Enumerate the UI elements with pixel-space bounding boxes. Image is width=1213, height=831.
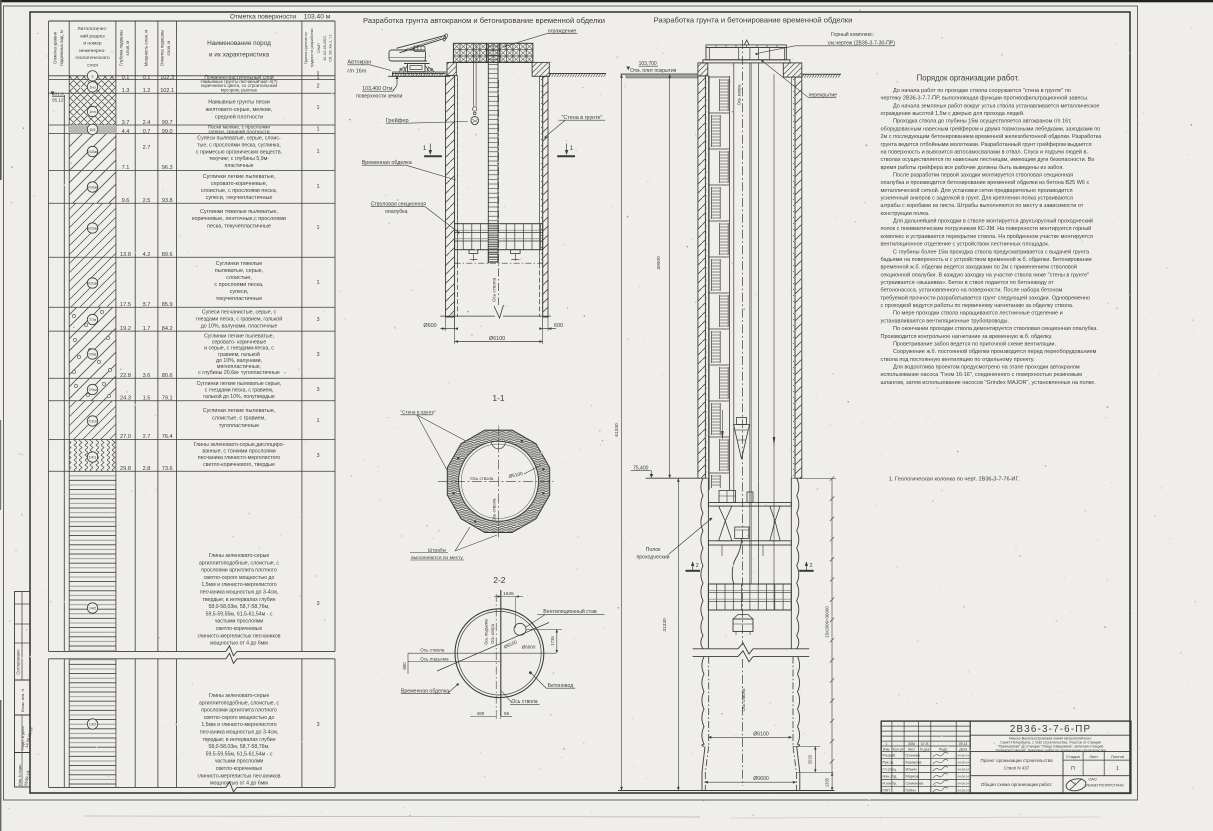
svg-text:устанавливаются вентиляционные: устанавливаются вентиляционные трубопров…: [881, 318, 1010, 324]
svg-text:супеси, текучепластичные: супеси, текучепластичные: [206, 195, 273, 201]
svg-text:светло-коричневого, твердые: светло-коричневого, твердые: [203, 462, 275, 468]
svg-text:1: 1: [1116, 766, 1119, 772]
svg-text:1: 1: [886, 742, 888, 746]
svg-text:Б/5: Б/5: [90, 127, 96, 132]
svg-text:средней плотности: средней плотности: [215, 114, 263, 121]
svg-text:частыми прослоями: частыми прослоями: [215, 619, 264, 625]
svg-text:трудности разработки: трудности разработки: [310, 29, 314, 68]
svg-text:твердые; в интервалах глубин: твердые; в интервалах глубин: [202, 597, 275, 603]
svg-text:металлической сеткой. Для уста: металлической сеткой. Для установки сетк…: [881, 187, 1073, 194]
svg-text:Супеси пылеватые, серые, слоис: Супеси пылеватые, серые, слоис-: [197, 136, 281, 142]
svg-text:Губин: Губин: [906, 788, 916, 792]
svg-text:твердые; в интервалах глубин: твердые; в интервалах глубин: [202, 737, 275, 743]
svg-text:05.12: 05.12: [52, 98, 64, 103]
svg-text:Разраб.: Разраб.: [883, 754, 897, 758]
svg-text:Глубина подошвы: Глубина подошвы: [119, 30, 124, 66]
svg-text:24.3: 24.3: [120, 396, 131, 402]
svg-text:1: 1: [316, 105, 319, 111]
svg-text:0.7: 0.7: [143, 129, 151, 135]
svg-text:г/п 16m: г/п 16m: [347, 69, 366, 75]
svg-text:Ось ствола: Ось ствола: [491, 498, 496, 522]
svg-text:14/2: 14/2: [89, 606, 97, 611]
svg-text:Марков: Марков: [906, 774, 919, 778]
svg-text:опалубка: опалубка: [385, 209, 408, 215]
svg-text:1: 1: [316, 127, 319, 133]
svg-text:35М: 35М: [908, 742, 915, 746]
svg-text:с гнездами песка, с гравием,: с гнездами песка, с гравием,: [205, 388, 274, 394]
svg-text:5/10ав: 5/10ав: [87, 185, 99, 190]
svg-text:песчаника глинисто-мергелистог: песчаника глинисто-мергелистого: [198, 455, 281, 461]
svg-text:геологического: геологического: [75, 56, 109, 61]
svg-text:1: 1: [423, 145, 427, 152]
svg-text:30000: 30000: [656, 256, 662, 270]
svg-text:101,9: 101,9: [52, 92, 64, 97]
svg-text:с глубины 20,6м- тугопластичны: с глубины 20,6м- тугопластичные: [198, 370, 280, 376]
svg-text:27.0: 27.0: [120, 434, 131, 440]
svg-text:аргиллитоподобные, слоистые, с: аргиллитоподобные, слоистые, с: [199, 700, 279, 706]
svg-text:Лист: Лист: [1089, 754, 1098, 759]
svg-text:Инв. N подл.: Инв. N подл.: [18, 764, 22, 786]
svg-text:29.8: 29.8: [120, 466, 131, 472]
svg-text:58,0-58,03м, 58,7-58,76м,: 58,0-58,03м, 58,7-58,76м,: [208, 604, 269, 610]
svg-text:04.08.14: 04.08.14: [958, 788, 970, 792]
svg-text:на поверхность и вывозится авт: на поверхность и вывозится автосамосвала…: [881, 148, 1087, 155]
svg-text:До начала работ по проходке ст: До начала работ по проходке ствола соору…: [893, 88, 1071, 94]
svg-text:Суглинки легкие пылеватые,: Суглинки легкие пылеватые,: [203, 408, 276, 414]
svg-text:Наименование пород: Наименование пород: [207, 40, 271, 47]
svg-text:пылеватые, серые,: пылеватые, серые,: [215, 268, 264, 274]
svg-text:и номер: и номер: [83, 42, 102, 47]
svg-text:слоя, м: слоя, м: [166, 41, 171, 56]
svg-text:Согласовано: Согласовано: [16, 649, 21, 675]
svg-text:3: 3: [316, 453, 319, 459]
svg-text:7.1: 7.1: [122, 165, 130, 171]
svg-text:Ось копра: Ось копра: [490, 623, 495, 644]
svg-text:Глины зеленовато-серые: Глины зеленовато-серые: [209, 693, 270, 699]
svg-text:1,5мм и глинисто-мергелистого: 1,5мм и глинисто-мергелистого: [201, 582, 276, 588]
svg-text:песка, текучепластичные: песка, текучепластичные: [207, 223, 271, 229]
svg-text:использование насоса "Гном 16-: использование насоса "Гном 16-16", соеди…: [881, 372, 1083, 378]
svg-text:до 10%, валунами, пластичные: до 10%, валунами, пластичные: [201, 324, 278, 330]
svg-text:После разработки первой заходк: После разработки первой заходки монтируе…: [893, 171, 1073, 178]
svg-text:7/7в: 7/7в: [89, 317, 96, 322]
svg-text:22.8: 22.8: [120, 373, 131, 379]
svg-text:По мере проходки ствола наращи: По мере проходки ствола наращиваются лес…: [893, 311, 1063, 317]
svg-text:Отм. плит покрытия: Отм. плит покрытия: [630, 68, 677, 74]
svg-text:полок с пневматическим погрузч: полок с пневматическим погрузчиком КС-3М…: [881, 225, 1092, 232]
svg-text:шлангом, затем использование н: шлангом, затем использование насосов "Gr…: [881, 380, 1097, 386]
svg-text:79.1: 79.1: [162, 396, 173, 402]
svg-text:Проветривание забоя ведется по: Проветривание забоя ведется по приточной…: [893, 340, 1056, 347]
svg-text:ствола под постоянную вентиляц: ствола под постоянную вентиляцию по отде…: [881, 357, 1036, 363]
svg-text:1735: 1735: [550, 636, 555, 646]
svg-text:частыми прослоями: частыми прослоями: [215, 759, 264, 765]
svg-text:3: 3: [316, 352, 319, 358]
svg-text:Для дальнейшей проходки в ство: Для дальнейшей проходки в стволе монтиру…: [893, 218, 1093, 225]
svg-text:3: 3: [316, 317, 319, 323]
svg-text:слоистые,: слоистые,: [226, 275, 252, 281]
svg-text:Для водоотлива проектом предус: Для водоотлива проектом предусмотрено на…: [893, 364, 1080, 370]
svg-text:Листов: Листов: [1111, 754, 1124, 759]
svg-text:конструкции полка.: конструкции полка.: [881, 211, 931, 217]
svg-text:Проходка ствола до глубины 15м: Проходка ствола до глубины 15м осуществл…: [893, 119, 1072, 125]
svg-text:с примесью органических вещест: с примесью органических веществ,: [196, 149, 282, 155]
svg-text:1: 1: [316, 149, 319, 155]
svg-text:грунта ведется отбойными молот: грунта ведется отбойными молотками. Разр…: [881, 141, 1092, 148]
svg-text:текучие; с глубины 5,9м-: текучие; с глубины 5,9м-: [209, 156, 269, 162]
svg-text:Супеси песчанистые, серые, с: Супеси песчанистые, серые, с: [202, 310, 277, 316]
svg-text:Лист: Лист: [907, 747, 915, 751]
svg-text:По окончании проходки ствола д: По окончании проходки ствола демонтирует…: [893, 326, 1098, 332]
svg-text:ванные, с тонкими прослоями: ванные, с тонкими прослоями: [202, 449, 275, 455]
svg-text:усиленный анкеров с заделкой в: усиленный анкеров с заделкой в грунт. Дл…: [881, 195, 1073, 202]
svg-text:слоя: слоя: [87, 64, 98, 69]
svg-text:76.4: 76.4: [162, 434, 173, 440]
svg-text:Ствол N 437: Ствол N 437: [1004, 766, 1030, 771]
svg-text:1-1: 1-1: [492, 393, 505, 403]
svg-text:до 10%, валунами,: до 10%, валунами,: [216, 358, 262, 364]
svg-text:Литологичес-: Литологичес-: [77, 26, 108, 32]
svg-text:ГИП: ГИП: [883, 788, 891, 792]
svg-text:серовато-коричневые,: серовато-коричневые,: [211, 181, 268, 187]
svg-text:Суглинки легкие пылеватые,: Суглинки легкие пылеватые,: [203, 174, 276, 180]
svg-text:1.5: 1.5: [143, 396, 151, 402]
svg-text:Полок: Полок: [646, 547, 661, 553]
svg-text:Ø6100: Ø6100: [489, 336, 505, 342]
svg-text:58,0-58,03м, 58,7-58,76м,: 58,0-58,03м, 58,7-58,76м,: [208, 744, 269, 750]
svg-text:желтовато-серые, мелкие,: желтовато-серые, мелкие,: [206, 107, 273, 113]
svg-text:светло-коричневых: светло-коричневых: [216, 626, 263, 632]
svg-text:800: 800: [402, 662, 407, 670]
svg-text:31330: 31330: [662, 618, 668, 632]
svg-text:2.7: 2.7: [143, 145, 151, 151]
svg-text:2.7: 2.7: [143, 434, 151, 440]
svg-text:19.2: 19.2: [120, 326, 131, 332]
svg-text:Глины зеленовато-серые,дислоци: Глины зеленовато-серые,дислоциро-: [194, 442, 285, 448]
svg-text:2020: 2020: [807, 754, 812, 764]
svg-text:Ось ствола: Ось ствола: [741, 688, 746, 712]
svg-text:1645: 1645: [503, 591, 514, 597]
svg-text:3.6: 3.6: [143, 373, 151, 379]
svg-text:2.4: 2.4: [143, 120, 151, 126]
svg-text:4.2: 4.2: [143, 252, 151, 258]
svg-text:супеси,: супеси,: [230, 289, 249, 295]
svg-text:глинисто-мергелистых песчанико: глинисто-мергелистых песчаников: [197, 773, 280, 779]
svg-text:Ø6000: Ø6000: [522, 645, 536, 650]
svg-text:секционной опалубки. В каждую: секционной опалубки. В каждую заходку на…: [881, 271, 1090, 278]
svg-text:0.1: 0.1: [122, 75, 130, 81]
svg-text:3.7: 3.7: [122, 120, 130, 126]
svg-text:1.3: 1.3: [122, 88, 130, 94]
svg-text:2: 2: [316, 84, 319, 90]
svg-text:56: 56: [504, 711, 510, 716]
svg-text:1.7: 1.7: [143, 326, 151, 332]
svg-text:103.40 м: 103.40 м: [304, 14, 331, 21]
svg-text:480: 480: [477, 711, 485, 716]
svg-text:ограждение высотой 1,5м с двер: ограждение высотой 1,5м с дверью для про…: [881, 110, 1025, 117]
svg-text:Сб. 28, Кн.1, т.1: Сб. 28, Кн.1, т.1: [329, 34, 333, 61]
svg-text:4.4: 4.4: [122, 129, 130, 135]
svg-text:Проект организации строительст: Проект организации строительства: [980, 758, 1053, 763]
svg-text:Производится контрольное нагне: Производится контрольное нагнетание за в…: [881, 334, 1053, 340]
svg-text:9.6: 9.6: [122, 198, 130, 204]
svg-text:Гл.спец.: Гл.спец.: [883, 768, 897, 772]
svg-text:Дата: Дата: [959, 747, 967, 751]
svg-text:Суглинки тяжелые пылеватые,: Суглинки тяжелые пылеватые,: [200, 209, 278, 215]
svg-text:04.08.14: 04.08.14: [958, 768, 970, 772]
svg-text:С глубины более 15м проходка с: С глубины более 15м проходка ствола пред…: [893, 248, 1090, 255]
svg-text:3: 3: [316, 601, 319, 607]
svg-text:ОАО: ОАО: [1088, 778, 1096, 782]
svg-text:73.6: 73.6: [162, 466, 173, 472]
svg-text:Семенова: Семенова: [906, 781, 925, 785]
svg-text:2м с последующим бетонирование: 2м с последующим бетонированием временно…: [881, 133, 1103, 140]
svg-text:и их характеристика: и их характеристика: [209, 52, 270, 59]
svg-text:2: 2: [696, 563, 699, 569]
svg-text:Намывные грунты пески: Намывные грунты пески: [208, 100, 270, 106]
svg-text:17.5: 17.5: [120, 302, 131, 308]
svg-text:П: П: [1071, 766, 1075, 772]
svg-text:N док: N док: [920, 747, 930, 751]
svg-text:Ось ствола: Ось ствола: [470, 476, 494, 481]
svg-text:1.2: 1.2: [143, 88, 151, 94]
svg-text:99.7: 99.7: [162, 120, 173, 126]
svg-text:тугопластичные: тугопластичные: [219, 423, 259, 429]
svg-text:Ильин: Ильин: [906, 768, 917, 772]
svg-text:Общая схема организации работ.: Общая схема организации работ.: [981, 782, 1053, 787]
svg-text:вентиляционное отделение с уст: вентиляционное отделение с устройством л…: [881, 241, 1050, 248]
svg-text:с проходкой ведутся работы по: с проходкой ведутся работы по первичному…: [881, 302, 1074, 309]
svg-text:Гранова: Гранова: [906, 754, 921, 758]
svg-text:Группа грунтов по: Группа грунтов по: [304, 32, 308, 64]
svg-text:102.3: 102.3: [160, 75, 174, 81]
svg-text:светло-серого мощностью до: светло-серого мощностью до: [204, 575, 275, 581]
svg-text:тые, с прослоями песка, суглин: тые, с прослоями песка, суглинка,: [197, 142, 281, 148]
svg-text:До начала земляных работ вокру: До начала земляных работ вокруг устья ст…: [893, 103, 1099, 109]
svg-text:коричневые, ленточные,с просло: коричневые, ленточные,с прослоями: [192, 216, 286, 222]
svg-text:инженерно-: инженерно-: [79, 49, 106, 54]
svg-text:Ø6100: Ø6100: [753, 731, 769, 737]
svg-text:пластичные: пластичные: [224, 163, 253, 169]
svg-text:кий разрез: кий разрез: [80, 32, 105, 39]
svg-text:мощностью от 4 до 6мм: мощностью от 4 до 6мм: [210, 781, 268, 787]
svg-text:04.08.14: 04.08.14: [958, 781, 970, 785]
svg-text:13.8: 13.8: [120, 252, 131, 258]
svg-text:96.3: 96.3: [162, 165, 173, 171]
svg-text:Ось подъема: Ось подъема: [420, 656, 449, 661]
svg-text:Стадия: Стадия: [1066, 754, 1080, 759]
svg-text:Нач.отд.: Нач.отд.: [883, 774, 898, 778]
svg-text:Суглинки тяжелые: Суглинки тяжелые: [216, 261, 263, 267]
svg-text:93.8: 93.8: [162, 198, 173, 204]
svg-text:Суглинки легкие пылеватые серы: Суглинки легкие пылеватые серые,: [197, 381, 282, 387]
svg-text:04.08.14: 04.08.14: [958, 761, 970, 765]
svg-text:3: 3: [316, 387, 319, 393]
svg-text:2.8: 2.8: [143, 466, 151, 472]
svg-text:чертежу 2В36-3-7-7-ПР, выполня: чертежу 2В36-3-7-7-ПР, выполняющая функц…: [881, 95, 1090, 102]
svg-text:светло-серого мощностью до: светло-серого мощностью до: [204, 715, 275, 721]
svg-text:2: 2: [809, 563, 812, 569]
svg-text:15х2000=30000: 15х2000=30000: [824, 606, 829, 638]
svg-text:1: 1: [316, 225, 319, 231]
svg-text:2-2: 2-2: [493, 575, 506, 585]
svg-text:подземных вод, м: подземных вод, м: [59, 30, 64, 66]
svg-text:песчаника мощностью до 3-4см,: песчаника мощностью до 3-4см,: [200, 590, 278, 596]
svg-text:штрабы с коробами из листа. Шт: штрабы с коробами из листа. Штрабы выпол…: [881, 203, 1084, 209]
svg-text:1: 1: [316, 418, 319, 424]
svg-text:7/9вг: 7/9вг: [88, 352, 97, 357]
svg-text:1но: 1но: [89, 85, 95, 90]
svg-text:Суглинки легкие пылеватые,: Суглинки легкие пылеватые,: [204, 334, 274, 340]
svg-text:59,5-59,55м, 61,5-61,54м - с: 59,5-59,55м, 61,5-61,54м - с: [206, 751, 273, 757]
svg-text:Подп.: Подп.: [939, 747, 949, 751]
svg-text:Мощность слоя, м: Мощность слоя, м: [144, 30, 149, 67]
svg-text:Ø6600: Ø6600: [753, 776, 769, 782]
svg-text:59,5-59,55м, 61,5-61,54м - с: 59,5-59,55м, 61,5-61,54м - с: [206, 611, 273, 617]
svg-text:Ось ствола: Ось ствола: [492, 278, 497, 302]
svg-text:89.6: 89.6: [162, 252, 173, 258]
svg-text:супеси, средней плотности: супеси, средней плотности: [209, 128, 270, 135]
svg-text:600: 600: [554, 323, 563, 329]
svg-text:мягкопластичные,: мягкопластичные,: [217, 364, 261, 370]
svg-text:1: 1: [316, 184, 319, 190]
svg-text:07-В: 07-В: [921, 742, 929, 746]
svg-text:6/12ав: 6/12ав: [87, 226, 99, 231]
svg-text:слоистые, с прослоями песка,: слоистые, с прослоями песка,: [201, 188, 278, 194]
svg-text:слоистые, с гравием,: слоистые, с гравием,: [212, 415, 266, 421]
svg-text:и серые, с гнездами песка, с: и серые, с гнездами песка, с: [204, 346, 274, 352]
svg-text:84.2: 84.2: [162, 326, 173, 332]
svg-text:галькой до 10%, полутвердые: галькой до 10%, полутвердые: [203, 393, 275, 400]
svg-text:0.1: 0.1: [143, 75, 151, 81]
svg-text:09.14: 09.14: [959, 742, 968, 746]
svg-text:1,5мм и глинисто-мергелистого: 1,5мм и глинисто-мергелистого: [201, 722, 276, 728]
svg-text:гравием, галькой: гравием, галькой: [218, 351, 260, 358]
svg-text:Отметка поверхности: Отметка поверхности: [230, 14, 297, 21]
svg-text:1330: 1330: [824, 777, 829, 787]
svg-text:99.0: 99.0: [162, 129, 173, 135]
svg-text:Горный комплекс:: Горный комплекс:: [831, 31, 874, 38]
svg-text:стволах осуществляется по наве: стволах осуществляется по навесным лестн…: [881, 157, 1095, 163]
svg-text:оборудованным навесным грейфер: оборудованным навесным грейфером и двумя…: [881, 125, 1101, 132]
svg-text:комплекс и устраивается перекр: комплекс и устраивается перекрытие ствол…: [881, 233, 1093, 240]
svg-text:Отметка подошвы: Отметка подошвы: [160, 30, 165, 66]
svg-text:Ось ствола: Ось ствола: [420, 648, 444, 653]
svg-text:3: 3: [316, 722, 319, 728]
svg-text:Отметка уровня: Отметка уровня: [53, 31, 58, 64]
svg-text:1нн: 1нн: [89, 109, 95, 114]
svg-text:временной ж.б. обделки ведется: временной ж.б. обделки ведется заходками…: [881, 264, 1077, 271]
svg-text:1: 1: [316, 280, 319, 286]
svg-text:1: 1: [316, 75, 319, 81]
svg-text:песчаника мощностью до 3-4см,: песчаника мощностью до 3-4см,: [200, 730, 278, 736]
svg-text:Порядок организации работ.: Порядок организации работ.: [917, 74, 1020, 83]
svg-text:7/10г: 7/10г: [88, 419, 98, 424]
svg-text:мусором, рыхлые: мусором, рыхлые: [221, 88, 258, 93]
svg-text:ЛЕНМЕТРОГИПРОТРАНС: ЛЕНМЕТРОГИПРОТРАНС: [1086, 784, 1125, 788]
svg-text:Глины зеленовато-серые: Глины зеленовато-серые: [209, 553, 270, 559]
svg-text:04.08.14: 04.08.14: [958, 754, 970, 758]
svg-text:глинисто-мергелистых песчанико: глинисто-мергелистых песчаников: [197, 633, 280, 639]
svg-text:бетононасоса, установленного н: бетононасоса, установленного на поверхно…: [881, 288, 1063, 294]
svg-text:Сооружение ж.б. постоянной обд: Сооружение ж.б. постоянной обделки произ…: [893, 348, 1097, 355]
svg-text:мощностью от 4 до 6мм: мощностью от 4 до 6мм: [210, 641, 268, 647]
svg-text:Н.контр.: Н.контр.: [883, 781, 898, 785]
svg-text:85.9: 85.9: [162, 302, 173, 308]
svg-text:аргиллитоподобные, слоистые, с: аргиллитоподобные, слоистые, с: [199, 560, 279, 566]
svg-text:6/11ав: 6/11ав: [87, 281, 99, 286]
svg-text:Ось копра: Ось копра: [736, 84, 741, 105]
svg-text:Ø600: Ø600: [423, 323, 436, 329]
svg-text:СНиП: СНиП: [317, 43, 321, 54]
svg-text:Изм.: Изм.: [883, 747, 891, 751]
svg-text:2В36-3-7-6-ПР: 2В36-3-7-6-ПР: [1010, 724, 1091, 735]
svg-text:прослоями аргиллита плотного: прослоями аргиллита плотного: [201, 708, 277, 714]
svg-text:с прослоями песка,: с прослоями песка,: [214, 282, 264, 288]
svg-text:Ось подъема: Ось подъема: [484, 618, 489, 644]
svg-text:Рук.гр.: Рук.гр.: [883, 761, 895, 765]
svg-text:опалубка и производится бетони: опалубка и производится бетонирование вр…: [881, 179, 1090, 186]
svg-text:80.6: 80.6: [162, 373, 173, 379]
svg-text:1. Геологическая колонка по че: 1. Геологическая колонка по черт. 2В36-3…: [889, 477, 1020, 483]
svg-text:требуемой прочности разрабатыв: требуемой прочности разрабатывается грун…: [881, 294, 1091, 301]
svg-text:Кол.уч: Кол.уч: [893, 747, 904, 751]
svg-text:04.08.14: 04.08.14: [958, 774, 970, 778]
svg-text:1: 1: [570, 145, 574, 152]
svg-text:прослоями аргиллита плотного: прослоями аргиллита плотного: [201, 568, 277, 574]
svg-text:текучепластичные: текучепластичные: [216, 296, 263, 302]
svg-text:Казакова: Казакова: [906, 761, 923, 765]
svg-text:Разработка грунта автокраном и: Разработка грунта автокраном и бетониров…: [363, 16, 605, 25]
svg-text:14/1: 14/1: [89, 455, 97, 460]
svg-text:слоя, м: слоя, м: [125, 41, 130, 56]
svg-text:5/10ав: 5/10ав: [87, 149, 99, 154]
svg-text:2: 2: [91, 74, 93, 79]
svg-text:бадьями на поверхность и с уст: бадьями на поверхность и с устройством в…: [881, 256, 1092, 263]
svg-text:устраивается «вышивка». Бетон: устраивается «вышивка». Бетон в ствол по…: [881, 280, 1055, 286]
svg-text:3.7: 3.7: [143, 302, 151, 308]
svg-text:серовато- коричневые: серовато- коричневые: [212, 340, 267, 346]
svg-text:"Стена в грунте": "Стена в грунте": [401, 410, 437, 415]
svg-text:14/2: 14/2: [89, 722, 97, 727]
svg-text:Разработка грунта и бетонирова: Разработка грунта и бетонирование времен…: [654, 16, 853, 25]
svg-text:Взам. инв. N: Взам. инв. N: [20, 689, 25, 712]
svg-text:гнездами песка, с гравием, гал: гнездами песка, с гравием, галькой: [196, 316, 282, 323]
svg-text:81-02-28-2001: 81-02-28-2001: [323, 36, 327, 61]
svg-text:поверхности земли: поверхности земли: [356, 94, 403, 100]
svg-text:проходческий: проходческий: [636, 553, 669, 560]
svg-text:2.5: 2.5: [143, 198, 151, 204]
svg-text:7/9ш: 7/9ш: [88, 387, 97, 392]
svg-text:102.1: 102.1: [160, 88, 174, 94]
svg-text:61330: 61330: [614, 423, 620, 437]
svg-text:светло-коричневых: светло-коричневых: [216, 766, 263, 772]
